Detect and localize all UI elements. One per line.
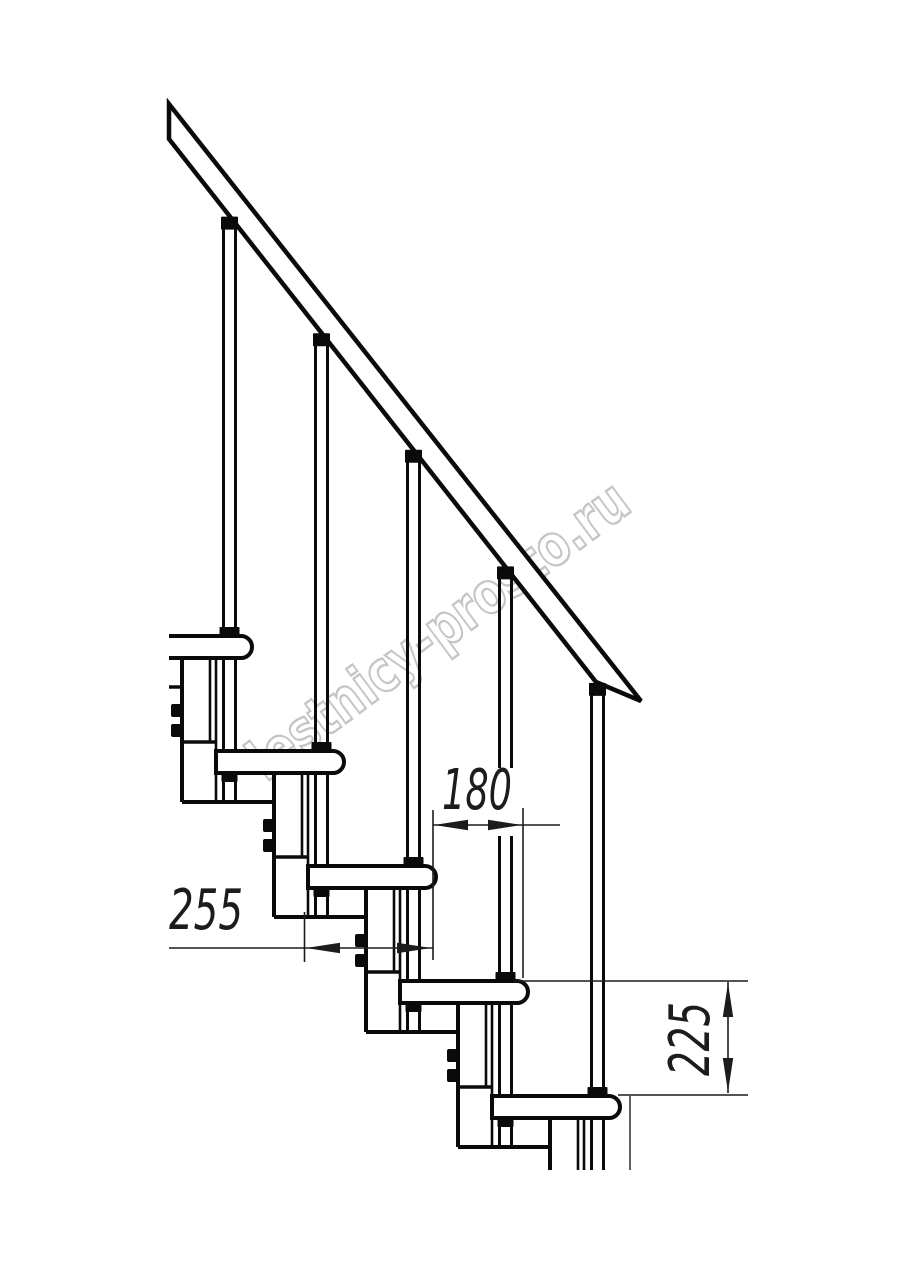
handrail	[169, 104, 641, 701]
baluster-base-nut	[220, 627, 240, 636]
module-bolt-tab	[447, 1049, 459, 1062]
dim-225-arrow-down	[723, 1058, 733, 1092]
module-bolt-tab	[263, 839, 275, 852]
baluster-base-nut	[312, 742, 332, 751]
staircase-elevation-svg: lestnicy-prosto.ru 255180225	[0, 0, 914, 1280]
baluster-base-nut	[404, 857, 424, 866]
module-bolt-tab	[263, 819, 275, 832]
tread	[216, 751, 344, 773]
tread	[308, 866, 436, 888]
module-bolt-tab	[355, 954, 367, 967]
baluster-base-nut	[496, 972, 516, 981]
module-bolt-tab	[171, 724, 183, 737]
tread	[169, 636, 252, 658]
under-tread-nut	[222, 773, 238, 782]
under-tread-nut	[314, 888, 330, 897]
tread	[400, 981, 528, 1003]
dim-255-arrow-left	[306, 943, 340, 953]
dim-label-255: 255	[169, 878, 243, 943]
module-bolt-tab	[355, 934, 367, 947]
under-tread-nut	[498, 1118, 514, 1127]
dim-255-arrow-right	[397, 943, 431, 953]
module-bolt-tab	[447, 1069, 459, 1082]
dim-label-225: 225	[658, 1002, 723, 1076]
dim-label-180: 180	[442, 758, 512, 823]
module-bolt-tab	[171, 704, 183, 717]
under-tread-nut	[406, 1003, 422, 1012]
tread	[492, 1096, 620, 1118]
dim-225-arrow-up	[723, 983, 733, 1017]
technical-drawing-page: lestnicy-prosto.ru 255180225	[0, 0, 914, 1280]
baluster-base-nut	[588, 1087, 608, 1096]
